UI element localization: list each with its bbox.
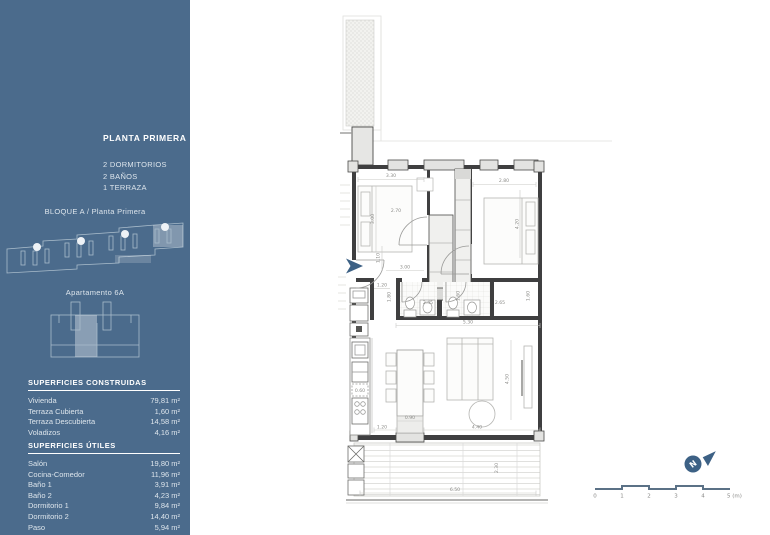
table-row: Paso 5,94 m² xyxy=(28,523,180,534)
row-label: Salón xyxy=(28,459,47,470)
dim-label: 1.10 xyxy=(376,253,382,263)
dim-label: 3.30 xyxy=(386,173,396,179)
apartment-label: Apartamento 6A xyxy=(0,288,190,297)
dim-label: 4.50 xyxy=(505,374,511,384)
built-areas-table: SUPERFICIES CONSTRUIDAS Vivienda 79,81 m… xyxy=(28,378,180,438)
table-row: Baño 1 3,91 m² xyxy=(28,480,180,491)
bathrooms xyxy=(400,282,490,317)
dim-label: 1.20 xyxy=(377,283,387,289)
feature-terrace: 1 TERRAZA xyxy=(103,182,167,194)
dim-label: 3.00 xyxy=(370,214,376,224)
table-row: Dormitorio 1 9,84 m² xyxy=(28,501,180,512)
scale-tick-label: 0 xyxy=(593,494,597,500)
dim-label: 2.45 xyxy=(423,300,433,306)
dim-label: 1.80 xyxy=(387,292,393,302)
dim-label: 2.65 xyxy=(495,300,505,306)
table-row: Terraza Cubierta 1,60 m² xyxy=(28,407,180,418)
row-value: 4,23 m² xyxy=(155,491,180,502)
dim-label: 1.60 xyxy=(526,291,532,301)
row-label: Voladizos xyxy=(28,428,60,439)
scale-tick-label: 1 xyxy=(620,494,624,500)
row-value: 19,80 m² xyxy=(150,459,180,470)
row-label: Terraza Cubierta xyxy=(28,407,83,418)
table-row: Vivienda 79,81 m² xyxy=(28,396,180,407)
terrace xyxy=(346,443,548,503)
table-row: Salón 19,80 m² xyxy=(28,459,180,470)
row-label: Baño 1 xyxy=(28,480,52,491)
feature-bathrooms: 2 BAÑOS xyxy=(103,171,167,183)
dim-label: 3.00 xyxy=(400,265,410,271)
sidebar: PLANTA PRIMERA 2 DORMITORIOS 2 BAÑOS 1 T… xyxy=(0,0,190,535)
row-value: 4,16 m² xyxy=(155,428,180,439)
page-title: PLANTA PRIMERA xyxy=(103,133,186,143)
block-plan-sketch xyxy=(3,219,187,277)
dim-label: 5.30 xyxy=(463,320,473,326)
north-arrow-icon: N xyxy=(685,450,718,473)
dim-label: 0.60 xyxy=(355,388,365,394)
feature-bedrooms: 2 DORMITORIOS xyxy=(103,159,167,171)
dim-label: 6.50 xyxy=(450,487,460,493)
row-label: Baño 2 xyxy=(28,491,52,502)
scale-tick-label: 4 xyxy=(701,494,705,500)
row-value: 9,84 m² xyxy=(155,501,180,512)
table-row: Cocina-Comedor 11,96 m² xyxy=(28,470,180,481)
scale-tick-label: 2 xyxy=(647,494,651,500)
table-row: Terraza Descubierta 14,58 m² xyxy=(28,417,180,428)
useful-areas-header: SUPERFICIES ÚTILES xyxy=(28,441,180,454)
row-label: Cocina-Comedor xyxy=(28,470,85,481)
row-value: 79,81 m² xyxy=(150,396,180,407)
dim-label: 0.90 xyxy=(405,415,415,421)
row-value: 3,91 m² xyxy=(155,480,180,491)
block-label: BLOQUE A / Planta Primera xyxy=(0,207,190,216)
dim-label: 2.80 xyxy=(499,178,509,184)
dim-label: 2.70 xyxy=(391,208,401,214)
entry-arrow-icon xyxy=(346,259,363,274)
row-value: 5,94 m² xyxy=(155,523,180,534)
dim-label: 2.30 xyxy=(494,463,500,473)
row-value: 14,40 m² xyxy=(150,512,180,523)
floor-plan-sheet: PLANTA PRIMERA 2 DORMITORIOS 2 BAÑOS 1 T… xyxy=(0,0,770,535)
kitchen xyxy=(350,288,372,435)
table-row: Dormitorio 2 14,40 m² xyxy=(28,512,180,523)
table-row: Baño 2 4,23 m² xyxy=(28,491,180,502)
row-label: Dormitorio 2 xyxy=(28,512,69,523)
dim-label: 4.40 xyxy=(472,425,482,431)
feature-list: 2 DORMITORIOS 2 BAÑOS 1 TERRAZA xyxy=(103,159,167,194)
row-value: 11,96 m² xyxy=(151,470,180,481)
scale-tick-label: 3 xyxy=(674,494,678,500)
row-label: Dormitorio 1 xyxy=(28,501,69,512)
built-areas-header: SUPERFICIES CONSTRUIDAS xyxy=(28,378,180,391)
row-value: 1,60 m² xyxy=(155,407,180,418)
scale-tick-label: 5 (m) xyxy=(727,494,742,500)
dim-label: 1.20 xyxy=(377,425,387,431)
row-label: Paso xyxy=(28,523,45,534)
dim-label: 4.20 xyxy=(515,219,521,229)
row-label: Vivienda xyxy=(28,396,57,407)
neighbor-structure xyxy=(338,16,612,309)
table-row: Voladizos 4,16 m² xyxy=(28,428,180,439)
apartment-unit-sketch xyxy=(45,299,145,363)
row-label: Terraza Descubierta xyxy=(28,417,95,428)
scale-bar: 0 1 2 3 4 5 (m) xyxy=(593,486,742,500)
dim-label: 1.60 xyxy=(456,291,462,301)
useful-areas-table: SUPERFICIES ÚTILES Salón 19,80 m² Cocina… xyxy=(28,441,180,533)
row-value: 14,58 m² xyxy=(150,417,180,428)
